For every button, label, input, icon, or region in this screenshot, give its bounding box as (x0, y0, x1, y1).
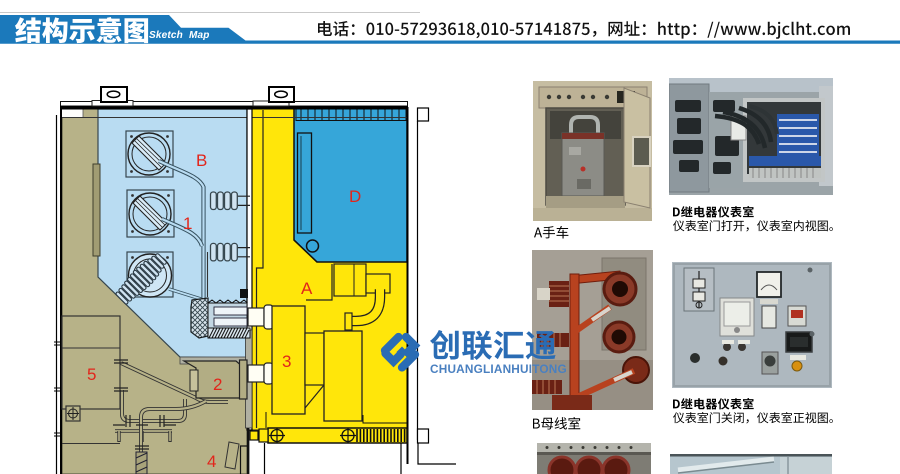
svg-text:4: 4 (207, 452, 216, 471)
svg-text:3: 3 (282, 352, 291, 371)
svg-text:D: D (349, 187, 361, 206)
svg-text:B: B (196, 151, 207, 170)
svg-text:2: 2 (213, 375, 222, 394)
svg-text:5: 5 (87, 365, 96, 384)
svg-text:1: 1 (183, 214, 192, 233)
svg-text:A: A (301, 279, 313, 298)
